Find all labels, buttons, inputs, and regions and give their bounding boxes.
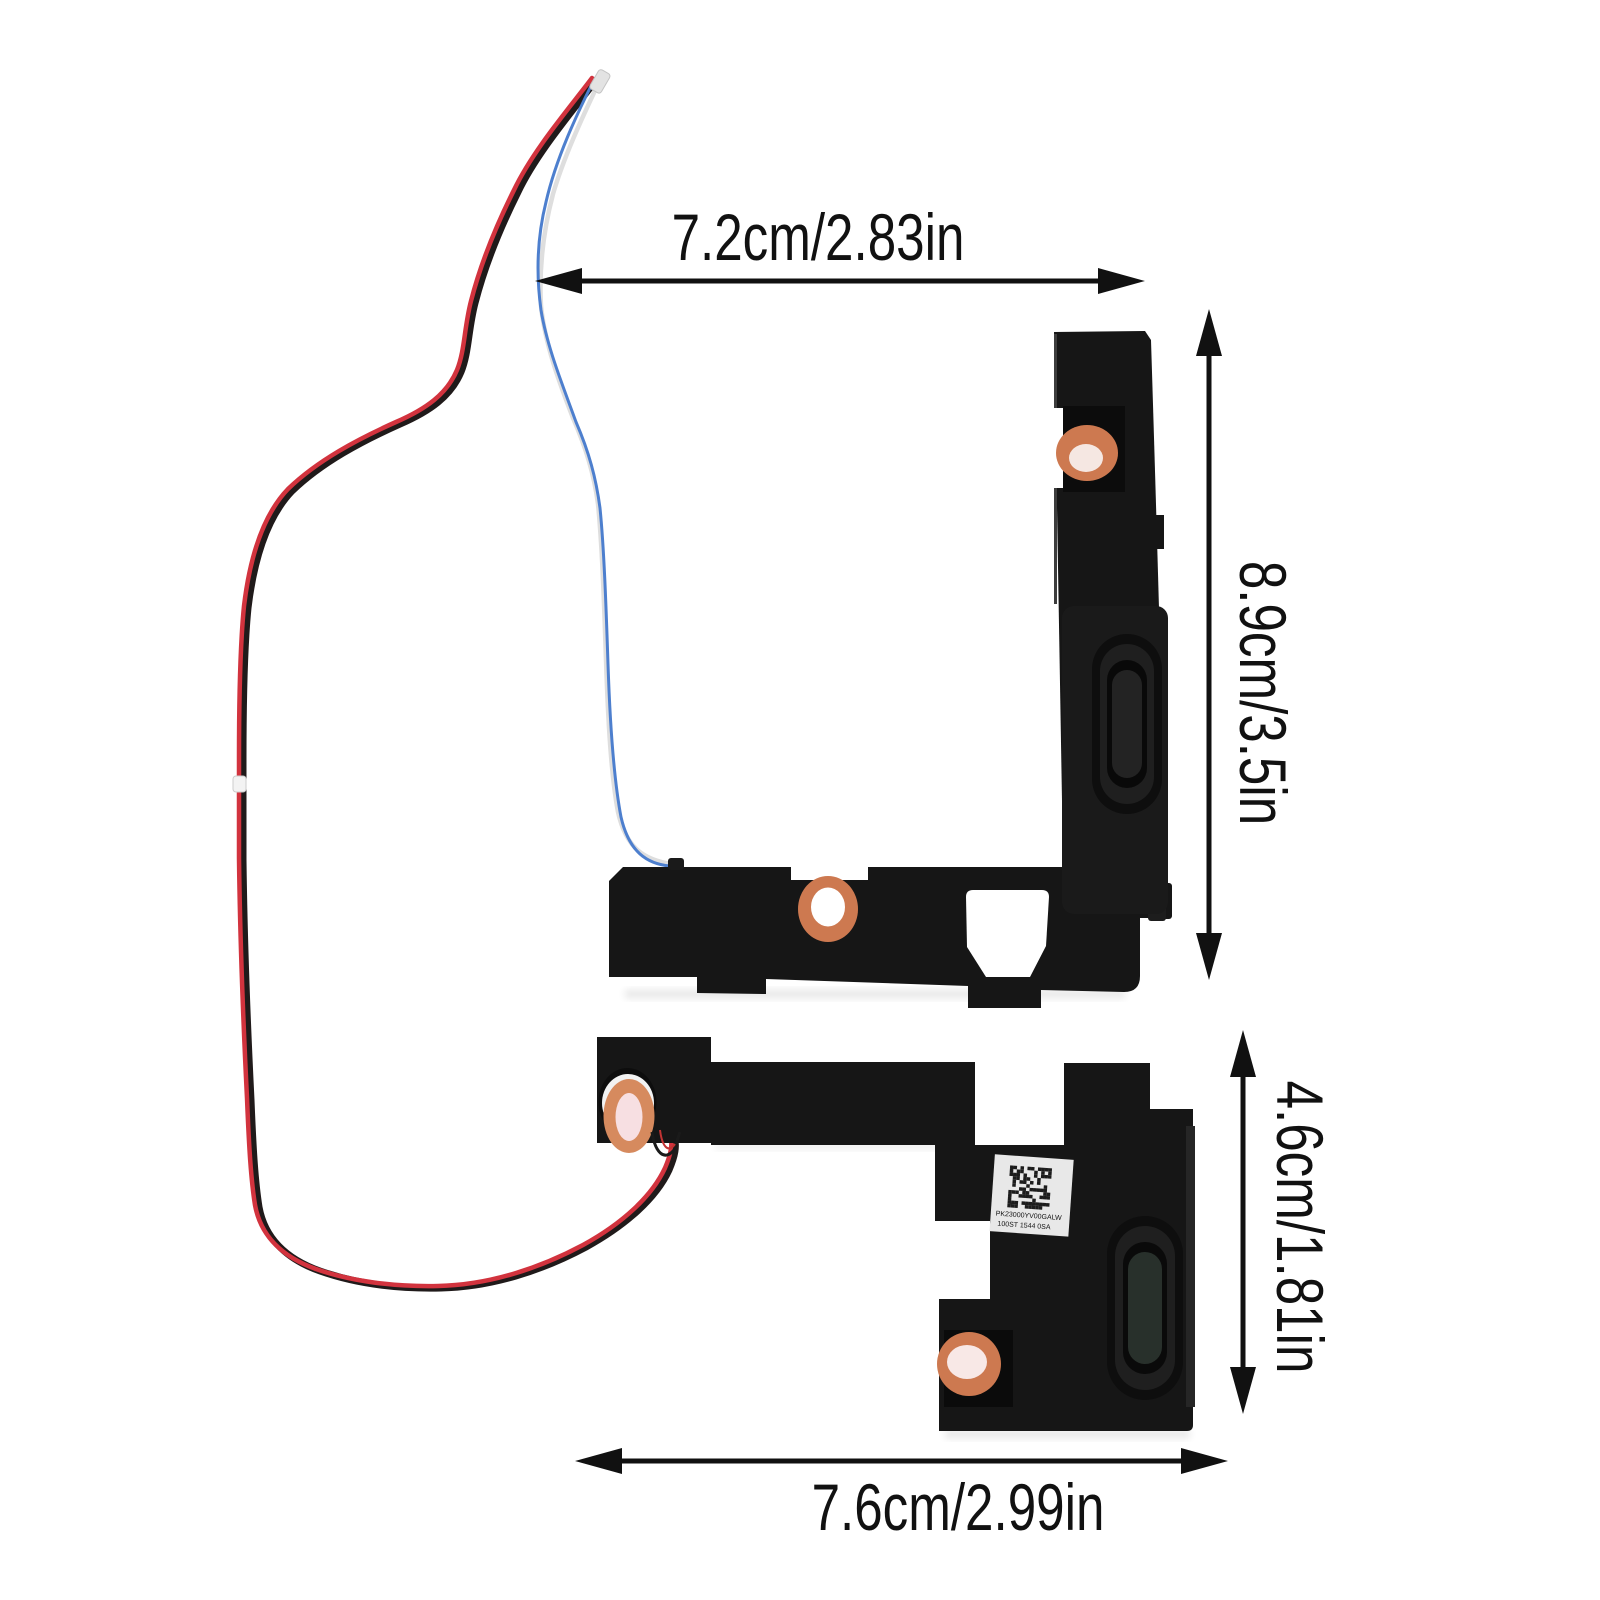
svg-text:7.6cm/2.99in: 7.6cm/2.99in xyxy=(812,1471,1105,1545)
svg-text:4.6cm/1.81in: 4.6cm/1.81in xyxy=(1262,1081,1336,1374)
svg-text:7.2cm/2.83in: 7.2cm/2.83in xyxy=(672,201,965,275)
svg-text:8.9cm/3.5in: 8.9cm/3.5in xyxy=(1225,561,1299,825)
